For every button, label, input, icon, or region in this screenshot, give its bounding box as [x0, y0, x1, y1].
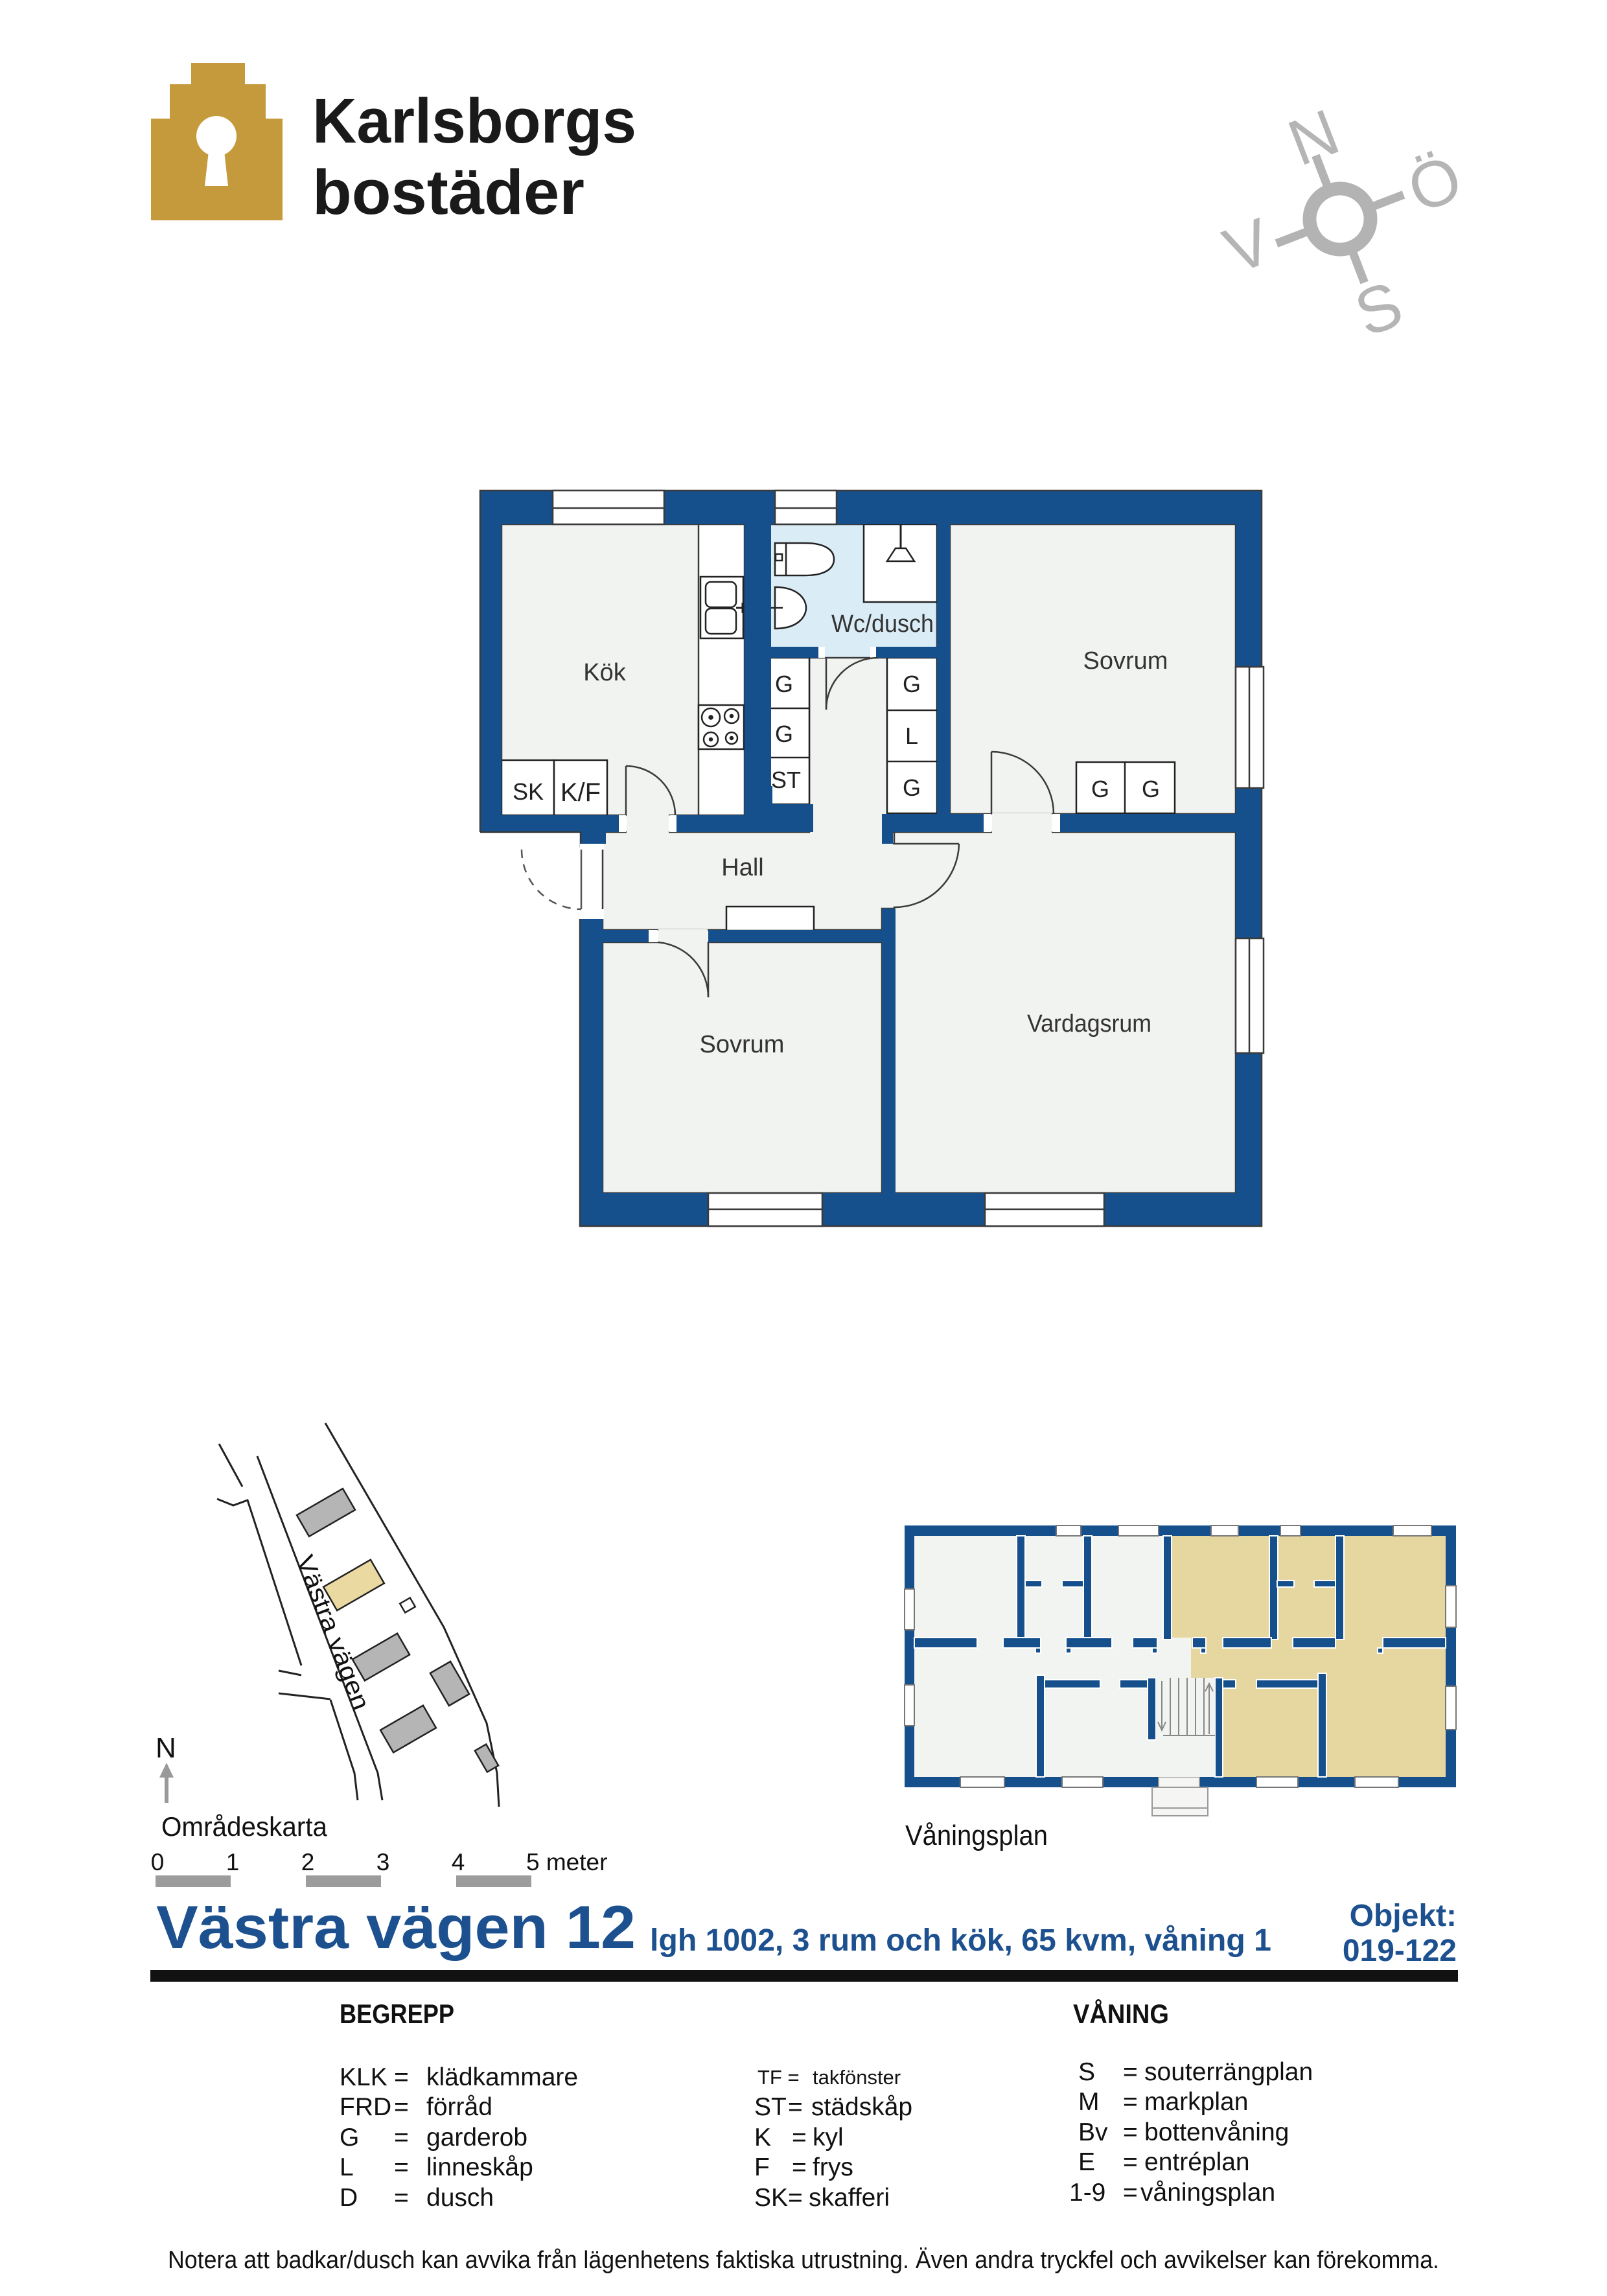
- svg-text:bottenvåning: bottenvåning: [1144, 2118, 1289, 2146]
- svg-text:G: G: [775, 721, 793, 747]
- svg-text:=: =: [792, 2124, 807, 2151]
- svg-text:FRD: FRD: [340, 2093, 391, 2121]
- svg-text:klädkammare: klädkammare: [426, 2063, 578, 2091]
- svg-text:ST: ST: [771, 767, 801, 793]
- svg-text:N: N: [156, 1732, 176, 1764]
- svg-text:0: 0: [151, 1849, 165, 1875]
- svg-text:019-122: 019-122: [1343, 1934, 1457, 1968]
- svg-text:=: =: [792, 2153, 807, 2181]
- svg-text:N: N: [1278, 95, 1348, 180]
- svg-text:=: =: [1123, 2058, 1138, 2086]
- svg-text:Objekt:: Objekt:: [1350, 1899, 1457, 1933]
- svg-text:KLK: KLK: [340, 2063, 387, 2091]
- svg-text:L: L: [340, 2153, 354, 2181]
- svg-text:=: =: [1123, 2179, 1138, 2207]
- svg-text:S: S: [1078, 2058, 1095, 2086]
- svg-text:markplan: markplan: [1144, 2088, 1248, 2116]
- svg-text:3: 3: [376, 1849, 390, 1875]
- svg-text:Sovrum: Sovrum: [1083, 647, 1168, 675]
- svg-text:G: G: [903, 774, 921, 801]
- svg-text:G: G: [775, 671, 793, 697]
- svg-text:F: F: [754, 2153, 770, 2181]
- svg-text:=: =: [394, 2093, 409, 2121]
- svg-text:Sovrum: Sovrum: [700, 1031, 785, 1058]
- svg-text:G: G: [1142, 776, 1160, 802]
- svg-text:frys: frys: [813, 2153, 853, 2181]
- svg-text:Wc/dusch: Wc/dusch: [831, 610, 934, 638]
- svg-text:Hall: Hall: [721, 854, 763, 881]
- svg-text:våningsplan: våningsplan: [1140, 2179, 1275, 2207]
- svg-text:G: G: [1091, 776, 1109, 802]
- svg-text:D: D: [340, 2184, 358, 2212]
- svg-text:G: G: [340, 2124, 359, 2151]
- svg-text:=: =: [788, 2184, 803, 2212]
- svg-text:M: M: [1078, 2088, 1100, 2116]
- svg-text:=: =: [1123, 2118, 1138, 2146]
- svg-text:TF =: TF =: [757, 2066, 800, 2089]
- svg-text:souterrängplan: souterrängplan: [1144, 2058, 1313, 2086]
- svg-text:V: V: [1214, 204, 1281, 288]
- svg-text:kyl: kyl: [813, 2124, 844, 2151]
- svg-text:förråd: förråd: [426, 2093, 492, 2121]
- svg-text:K/F: K/F: [561, 778, 601, 807]
- svg-text:städskåp: städskåp: [811, 2093, 912, 2121]
- svg-text:BEGREPP: BEGREPP: [340, 1999, 454, 2029]
- svg-text:ST: ST: [754, 2093, 787, 2121]
- svg-text:L: L: [905, 723, 918, 749]
- svg-text:Våningsplan: Våningsplan: [905, 1820, 1048, 1851]
- svg-text:bostäder: bostäder: [312, 157, 584, 227]
- svg-text:1: 1: [226, 1849, 240, 1875]
- svg-text:=: =: [1123, 2148, 1138, 2176]
- svg-text:=: =: [788, 2093, 803, 2121]
- svg-text:=: =: [394, 2124, 409, 2151]
- svg-text:Vardagsrum: Vardagsrum: [1027, 1010, 1151, 1038]
- svg-text:=: =: [394, 2153, 409, 2181]
- svg-text:Områdeskarta: Områdeskarta: [161, 1811, 328, 1842]
- svg-text:Ö: Ö: [1398, 141, 1472, 227]
- svg-text:Karlsborgs: Karlsborgs: [312, 86, 636, 156]
- svg-text:S: S: [1346, 268, 1412, 351]
- svg-text:Bv: Bv: [1078, 2118, 1108, 2146]
- svg-text:2: 2: [301, 1849, 315, 1875]
- svg-text:takfönster: takfönster: [813, 2066, 901, 2089]
- svg-text:skafferi: skafferi: [809, 2184, 890, 2212]
- svg-text:K: K: [754, 2124, 771, 2151]
- svg-text:linneskåp: linneskåp: [426, 2153, 533, 2181]
- svg-text:1-9: 1-9: [1069, 2179, 1105, 2207]
- svg-text:E: E: [1078, 2148, 1095, 2176]
- svg-text:G: G: [903, 671, 921, 697]
- svg-text:SK: SK: [754, 2184, 788, 2212]
- svg-text:dusch: dusch: [426, 2184, 494, 2212]
- svg-text:lgh 1002, 3 rum och kök, 65 k: lgh 1002, 3 rum och kök, 65 kvm, våning …: [650, 1923, 1271, 1958]
- svg-text:5 meter: 5 meter: [526, 1849, 607, 1875]
- svg-text:=: =: [1123, 2088, 1138, 2116]
- svg-text:garderob: garderob: [426, 2124, 527, 2151]
- svg-text:SK: SK: [513, 778, 544, 805]
- svg-text:VÅNING: VÅNING: [1073, 1999, 1169, 2029]
- svg-text:Västra vägen 12: Västra vägen 12: [156, 1893, 636, 1961]
- svg-text:=: =: [394, 2184, 409, 2212]
- svg-text:Notera att badkar/dusch kan av: Notera att badkar/dusch kan avvika från …: [168, 2247, 1439, 2274]
- svg-text:entréplan: entréplan: [1144, 2148, 1250, 2176]
- svg-text:Kök: Kök: [583, 659, 626, 686]
- svg-text:4: 4: [452, 1849, 465, 1875]
- svg-text:=: =: [394, 2063, 409, 2091]
